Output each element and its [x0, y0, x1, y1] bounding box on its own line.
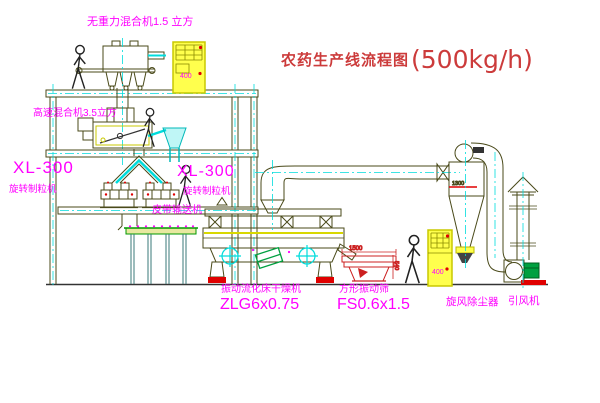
diagram-title-capacity: (500kg/h): [411, 45, 533, 74]
exhaust-duct: [255, 160, 460, 230]
control-cabinet-right: 400: [428, 230, 452, 286]
label-granulator-right-model: XL-300: [177, 164, 235, 180]
fluid-bed-dryer-drawing: [203, 209, 356, 283]
rotary-granulator-right-drawing: [142, 182, 180, 208]
control-cabinet-top: 400: [173, 42, 205, 93]
rotary-granulator-left-drawing: [100, 182, 138, 208]
cabinet-right-reading: 400: [432, 269, 444, 276]
person-figure: [406, 236, 420, 284]
cad-drawing-canvas: 400: [0, 0, 600, 403]
label-screen-model: FS0.6x1.5: [337, 297, 410, 313]
label-dryer-name: 振动流化床干燥机: [221, 285, 301, 295]
label-belt-conveyor: 皮带输送机: [152, 206, 202, 216]
cabinet-top-reading: 400: [180, 73, 192, 80]
label-screen-name: 方形振动筛: [339, 285, 389, 295]
cyclone-dim-text: 1300: [452, 181, 464, 187]
screen-width-dim-text: 1500: [349, 246, 363, 252]
label-dryer-model: ZLG6x0.75: [220, 297, 299, 313]
diagram-title: 农药生产线流程图 (500kg/h): [281, 45, 533, 74]
belt-conveyor-drawing: [118, 214, 198, 284]
label-granulator-left-name: 旋转制粒机: [9, 185, 57, 195]
label-induced-fan: 引风机: [508, 296, 540, 307]
label-cyclone: 旋风除尘器: [446, 297, 499, 308]
person-figures: [72, 45, 420, 283]
label-granulator-right-name: 旋转制粒机: [183, 187, 231, 197]
label-high-speed-mixer: 高速混合机3.5立方: [33, 109, 117, 119]
diagram-title-cn: 农药生产线流程图: [281, 49, 409, 74]
label-granulator-left-model: XL-300: [13, 159, 74, 176]
cyclone-drawing: 1300: [449, 140, 484, 270]
person-figure: [72, 45, 85, 88]
screen-height-dim-text: 540: [393, 261, 399, 270]
induced-fan-drawing: [504, 260, 546, 285]
label-gravity-mixer: 无重力混合机1.5 立方: [87, 17, 193, 28]
vibrating-screen-drawing: 1500 540: [342, 246, 399, 281]
